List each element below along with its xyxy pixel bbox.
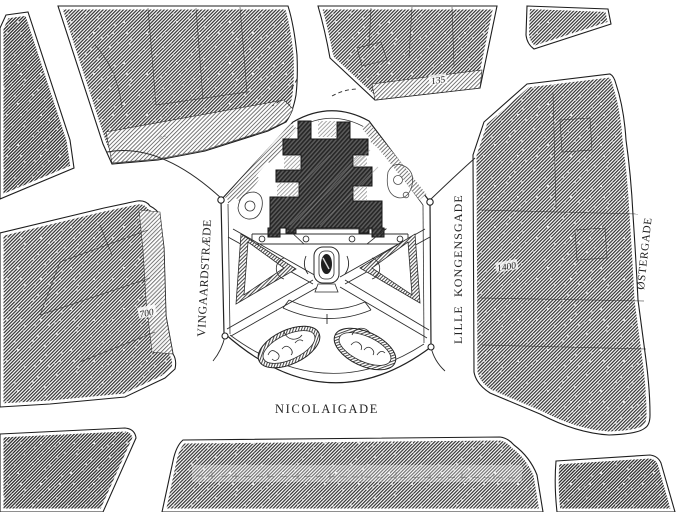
svg-text:LILLE KONGENSGADE: LILLE KONGENSGADE bbox=[451, 194, 465, 344]
svg-text:NICOLAIGADE: NICOLAIGADE bbox=[275, 402, 379, 416]
svg-text:135: 135 bbox=[431, 75, 447, 87]
